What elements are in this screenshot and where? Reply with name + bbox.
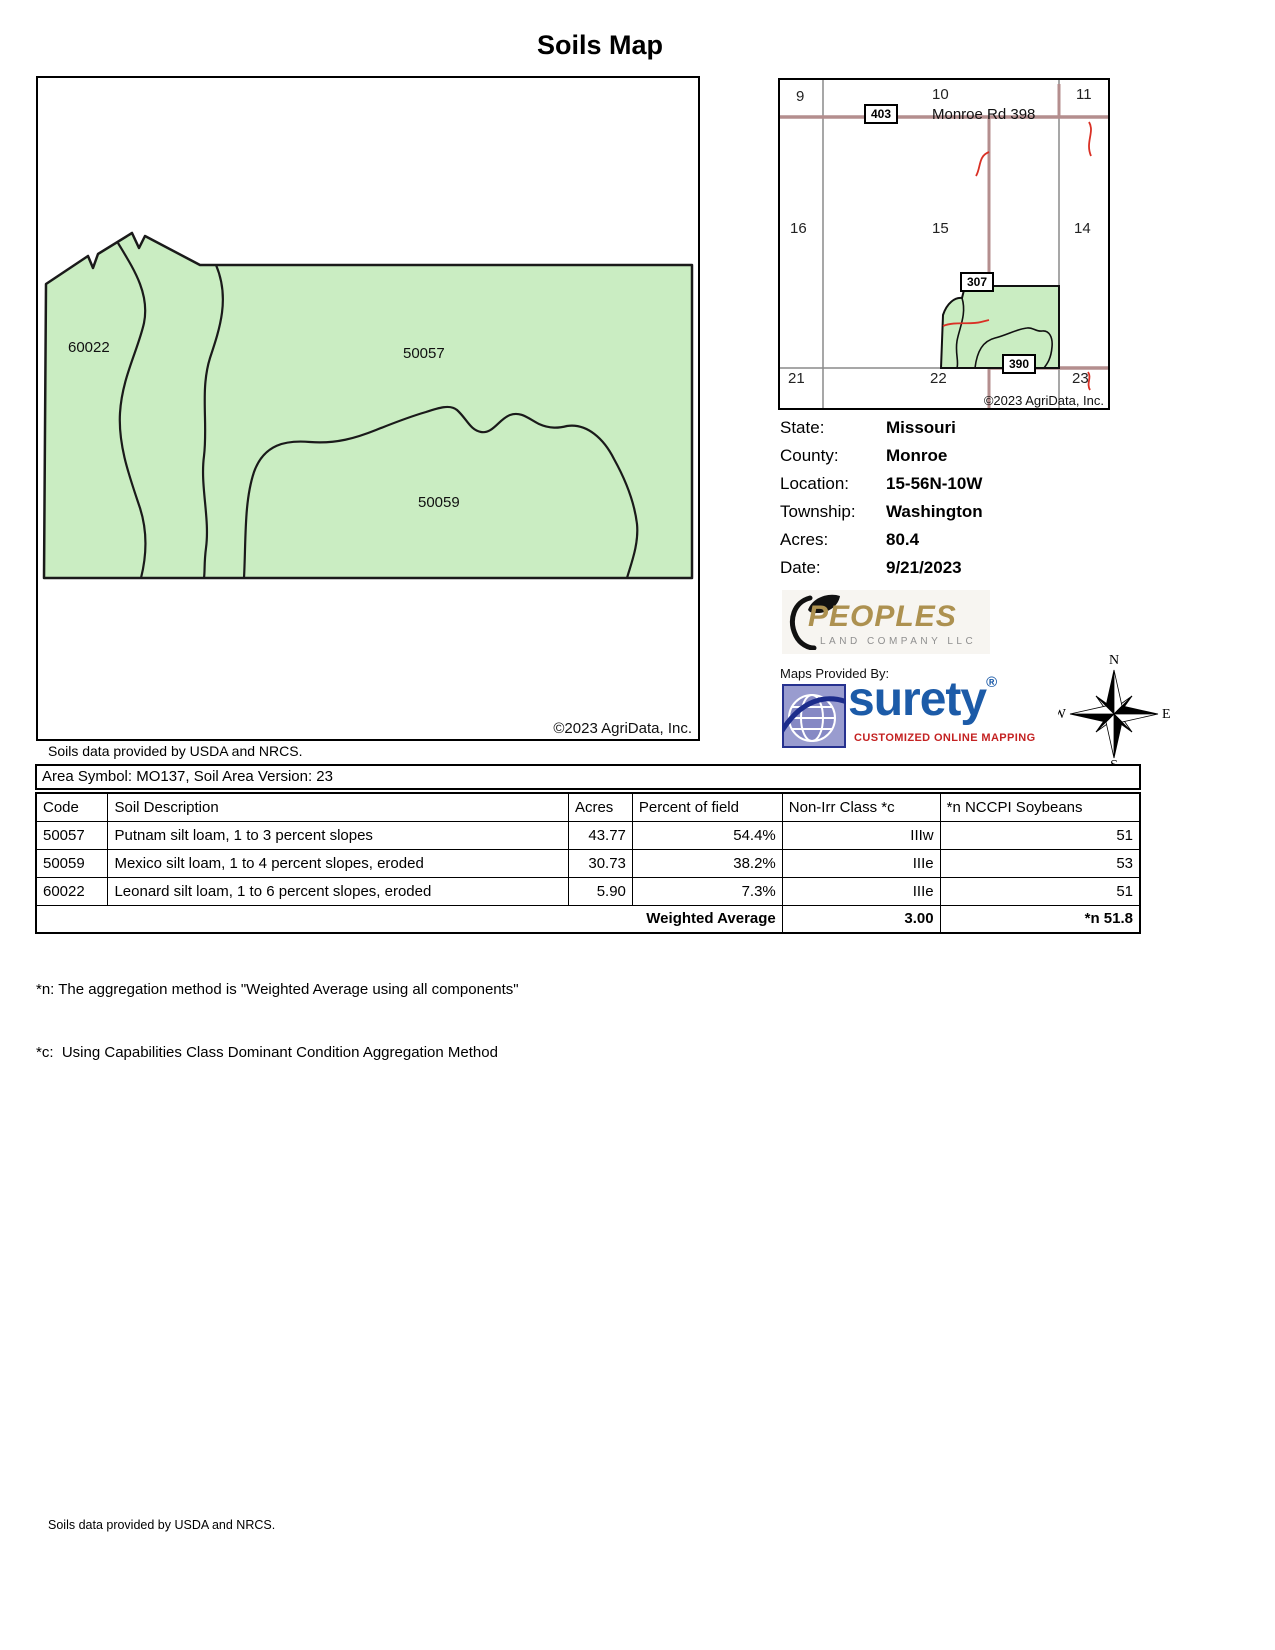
state-label: State: — [780, 414, 886, 442]
col-nccpi: *n NCCPI Soybeans — [940, 793, 1140, 821]
area-symbol-header: Area Symbol: MO137, Soil Area Version: 2… — [35, 764, 1141, 790]
col-code: Code — [36, 793, 108, 821]
soil-data-table: Code Soil Description Acres Percent of f… — [35, 792, 1141, 934]
county-value: Monroe — [886, 446, 947, 465]
col-nonirr: Non-Irr Class *c — [782, 793, 940, 821]
locator-graphic — [780, 80, 1108, 408]
cell-acres: 43.77 — [568, 821, 632, 849]
cell-nonirr: IIIe — [782, 877, 940, 905]
road-name-label: Monroe Rd 398 — [932, 106, 1035, 123]
section-11: 11 — [1076, 86, 1092, 103]
acres-label: Acres: — [780, 526, 886, 554]
cell-percent: 7.3% — [632, 877, 782, 905]
cell-description: Leonard silt loam, 1 to 6 percent slopes… — [108, 877, 568, 905]
surety-globe-icon — [782, 684, 846, 748]
location-value: 15-56N-10W — [886, 474, 982, 493]
road-badge-390: 390 — [1002, 354, 1036, 374]
table-header-row: Code Soil Description Acres Percent of f… — [36, 793, 1140, 821]
registered-mark: ® — [986, 674, 996, 691]
page-title: Soils Map — [0, 30, 1200, 61]
col-acres: Acres — [568, 793, 632, 821]
cell-code: 50059 — [36, 849, 108, 877]
cell-nccpi: 51 — [940, 821, 1140, 849]
location-label: Location: — [780, 470, 886, 498]
weighted-average-nccpi: *n 51.8 — [940, 905, 1140, 933]
township-label: Township: — [780, 498, 886, 526]
road-badge-307: 307 — [960, 272, 994, 292]
compass-rose-icon: N E S W — [1058, 650, 1170, 770]
field-boundary-graphic — [38, 78, 698, 739]
footer-soils-data-note: Soils data provided by USDA and NRCS. — [48, 1518, 275, 1532]
state-value: Missouri — [886, 418, 956, 437]
township-value: Washington — [886, 502, 983, 521]
table-row: 50057 Putnam silt loam, 1 to 3 percent s… — [36, 821, 1140, 849]
soils-map-report-page: Soils Map 60022 50057 50059 ©2023 AgriDa… — [0, 0, 1275, 1650]
cell-description: Putnam silt loam, 1 to 3 percent slopes — [108, 821, 568, 849]
compass-n: N — [1109, 653, 1119, 668]
footnote-n: *n: The aggregation method is "Weighted … — [36, 979, 519, 1000]
info-row-location: Location:15-56N-10W — [780, 470, 983, 498]
section-16: 16 — [790, 220, 807, 237]
table-row: 50059 Mexico silt loam, 1 to 4 percent s… — [36, 849, 1140, 877]
peoples-subtitle: LAND COMPANY LLC — [820, 636, 976, 647]
info-row-county: County:Monroe — [780, 442, 983, 470]
soil-region-label-50059: 50059 — [418, 494, 460, 511]
surety-logo: surety® CUSTOMIZED ONLINE MAPPING — [782, 682, 1052, 762]
county-label: County: — [780, 442, 886, 470]
acres-value: 80.4 — [886, 530, 919, 549]
section-9: 9 — [796, 88, 804, 105]
footnote-c: *c: Using Capabilities Class Dominant Co… — [36, 1042, 519, 1063]
cell-nonirr: IIIw — [782, 821, 940, 849]
cell-code: 60022 — [36, 877, 108, 905]
compass-w: W — [1058, 707, 1067, 722]
soil-region-label-50057: 50057 — [403, 345, 445, 362]
cell-description: Mexico silt loam, 1 to 4 percent slopes,… — [108, 849, 568, 877]
cell-percent: 38.2% — [632, 849, 782, 877]
cell-acres: 30.73 — [568, 849, 632, 877]
cell-code: 50057 — [36, 821, 108, 849]
info-row-township: Township:Washington — [780, 498, 983, 526]
cell-nonirr: IIIe — [782, 849, 940, 877]
section-22: 22 — [930, 370, 947, 387]
map-copyright: ©2023 AgriData, Inc. — [553, 720, 692, 737]
cell-percent: 54.4% — [632, 821, 782, 849]
locator-copyright: ©2023 AgriData, Inc. — [984, 393, 1104, 408]
section-14: 14 — [1074, 220, 1091, 237]
soils-data-note: Soils data provided by USDA and NRCS. — [48, 743, 302, 759]
info-row-date: Date:9/21/2023 — [780, 554, 983, 582]
info-row-acres: Acres:80.4 — [780, 526, 983, 554]
table-row: 60022 Leonard silt loam, 1 to 6 percent … — [36, 877, 1140, 905]
col-description: Soil Description — [108, 793, 568, 821]
info-row-state: State:Missouri — [780, 414, 983, 442]
surety-tagline: CUSTOMIZED ONLINE MAPPING — [854, 732, 1036, 744]
main-soils-map: 60022 50057 50059 ©2023 AgriData, Inc. — [36, 76, 700, 741]
cell-nccpi: 53 — [940, 849, 1140, 877]
peoples-land-company-logo: PEOPLES LAND COMPANY LLC — [782, 590, 990, 654]
soil-region-label-60022: 60022 — [68, 339, 110, 356]
date-label: Date: — [780, 554, 886, 582]
date-value: 9/21/2023 — [886, 558, 962, 577]
cell-nccpi: 51 — [940, 877, 1140, 905]
section-10: 10 — [932, 86, 949, 103]
parcel-info-block: State:Missouri County:Monroe Location:15… — [780, 414, 983, 582]
peoples-wordmark: PEOPLES — [808, 600, 957, 634]
col-percent: Percent of field — [632, 793, 782, 821]
footnotes: *n: The aggregation method is "Weighted … — [36, 937, 519, 1105]
weighted-average-label: Weighted Average — [36, 905, 782, 933]
section-15: 15 — [932, 220, 949, 237]
road-badge-403: 403 — [864, 104, 898, 124]
section-23: 23 — [1072, 370, 1089, 387]
surety-text: surety — [848, 673, 986, 726]
weighted-average-nonirr: 3.00 — [782, 905, 940, 933]
cell-acres: 5.90 — [568, 877, 632, 905]
weighted-average-row: Weighted Average 3.00 *n 51.8 — [36, 905, 1140, 933]
locator-field-polygon — [941, 286, 1059, 368]
locator-map: 9 10 11 16 15 14 21 22 23 403 307 390 Mo… — [778, 78, 1110, 410]
compass-e: E — [1162, 707, 1170, 722]
surety-wordmark: surety® — [848, 672, 996, 727]
section-21: 21 — [788, 370, 805, 387]
